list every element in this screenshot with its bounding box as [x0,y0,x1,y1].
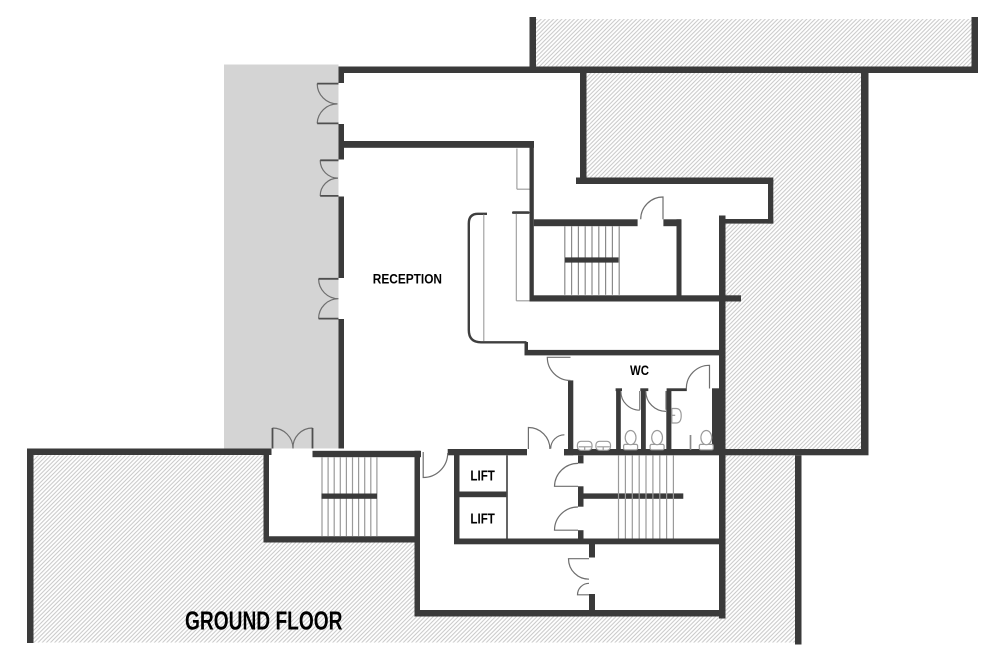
svg-text:GROUND FLOOR: GROUND FLOOR [185,606,343,636]
svg-text:RECEPTION: RECEPTION [373,272,442,288]
svg-text:LIFT: LIFT [470,468,495,484]
svg-text:WC: WC [630,363,649,378]
svg-text:LIFT: LIFT [470,511,495,527]
